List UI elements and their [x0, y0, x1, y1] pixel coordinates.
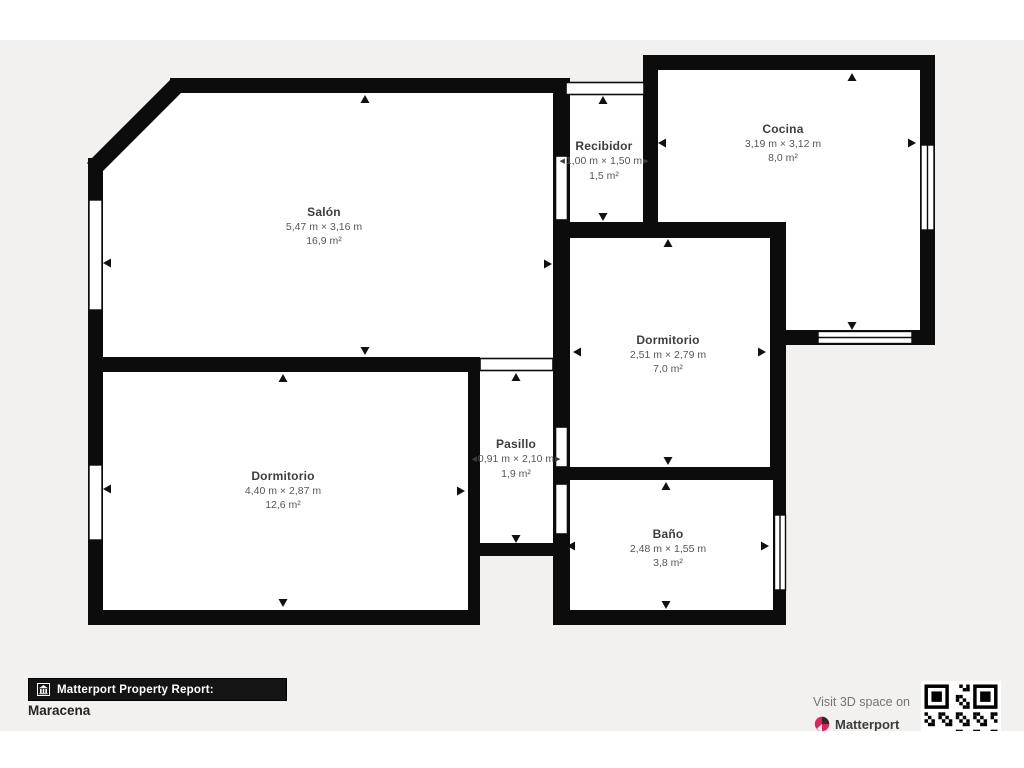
room-name: Baño — [630, 527, 706, 542]
room-label-pasillo: Pasillo ◀0,91 m × 2,10 m▶ 1,9 m² — [471, 437, 562, 482]
room-area: 1,9 m² — [471, 467, 562, 482]
room-name: Recibidor — [559, 139, 650, 154]
room-name: Pasillo — [471, 437, 562, 452]
dim-arrow-right-icon: ▶ — [554, 456, 561, 463]
room-label-recibidor: Recibidor ◀1,00 m × 1,50 m▶ 1,5 m² — [559, 139, 650, 184]
room-name: Cocina — [745, 122, 821, 137]
floorplan-drawing — [0, 40, 1024, 731]
room-label-dormitorio-right: Dormitorio 2,51 m × 2,79 m 7,0 m² — [630, 333, 706, 377]
room-dims: ◀0,91 m × 2,10 m▶ — [471, 452, 562, 468]
report-canvas: Salón 5,47 m × 3,16 m 16,9 m² Recibidor … — [0, 40, 1024, 731]
entrance-door-icon — [566, 83, 644, 95]
property-name: Maracena — [28, 703, 90, 718]
room-dims: 4,40 m × 2,87 m — [245, 484, 321, 499]
room-dims: 2,51 m × 2,79 m — [630, 348, 706, 363]
property-report-page: Salón 5,47 m × 3,16 m 16,9 m² Recibidor … — [0, 0, 1024, 768]
pasillo-bano-door-icon — [556, 484, 568, 534]
room-name: Dormitorio — [630, 333, 706, 348]
salon-window-icon — [89, 200, 102, 310]
room-label-bano: Baño 2,48 m × 1,55 m 3,8 m² — [630, 527, 706, 571]
room-area: 8,0 m² — [745, 151, 821, 166]
room-dims: 5,47 m × 3,16 m — [286, 220, 362, 235]
matterport-logo-icon — [814, 716, 830, 731]
house-icon — [37, 683, 50, 696]
room-dims: ◀1,00 m × 1,50 m▶ — [559, 154, 650, 170]
dormitorio-left-window-icon — [89, 465, 102, 540]
dim-arrow-right-icon: ▶ — [642, 158, 649, 165]
room-area: 3,8 m² — [630, 556, 706, 571]
room-area: 7,0 m² — [630, 362, 706, 377]
room-name: Dormitorio — [245, 469, 321, 484]
matterport-brand-row: Matterport — [814, 716, 899, 731]
qr-code — [921, 681, 1001, 731]
report-title-bar: Matterport Property Report: — [28, 678, 287, 701]
room-area: 12,6 m² — [245, 498, 321, 513]
room-dims: 2,48 m × 1,55 m — [630, 542, 706, 557]
matterport-wordmark: Matterport — [835, 717, 899, 732]
room-dims: 3,19 m × 3,12 m — [745, 137, 821, 152]
room-area: 16,9 m² — [286, 234, 362, 249]
room-name: Salón — [286, 205, 362, 220]
room-label-cocina: Cocina 3,19 m × 3,12 m 8,0 m² — [745, 122, 821, 166]
visit-3d-text: Visit 3D space on — [790, 695, 910, 709]
room-label-salon: Salón 5,47 m × 3,16 m 16,9 m² — [286, 205, 362, 249]
room-label-dormitorio-left: Dormitorio 4,40 m × 2,87 m 12,6 m² — [245, 469, 321, 513]
room-area: 1,5 m² — [559, 169, 650, 184]
report-title: Matterport Property Report: — [57, 684, 214, 696]
salon-pasillo-door-icon — [480, 359, 553, 371]
